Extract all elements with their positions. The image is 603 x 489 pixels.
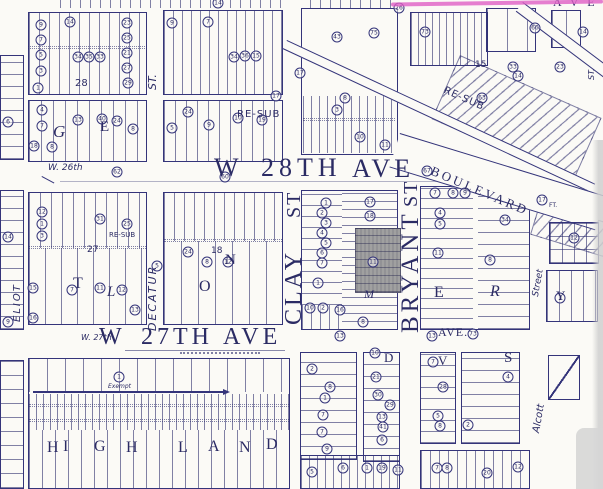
block-letter-label: V (438, 354, 447, 367)
lot-rows (164, 193, 282, 241)
lot-number-badge: 2 (307, 364, 318, 375)
lot-number-badge: 17 (295, 68, 306, 79)
lot-number-badge: 14 (513, 71, 524, 82)
lot-number-badge: 24 (112, 116, 123, 127)
street-label: CLAY (282, 250, 306, 325)
map-annotation: M (364, 288, 374, 300)
lot-rows (164, 241, 282, 324)
block-letter-label: H (47, 440, 59, 456)
lot-number-badge: 12 (569, 233, 580, 244)
lot-number-badge: 14 (578, 27, 589, 38)
lot-number-badge: 10 (355, 132, 366, 143)
street-label: ST (401, 180, 421, 207)
lot-number-badge: 18 (29, 141, 40, 152)
lot-number-badge: 6 (377, 435, 388, 446)
lot-number-badge: 62 (112, 167, 123, 178)
street-label: ST (284, 191, 304, 218)
block-letter-label: R (490, 284, 500, 300)
map-annotation: 27 (87, 246, 98, 255)
map-annotation: 15 (475, 61, 486, 70)
lot-number-badge: 8 (340, 93, 351, 104)
lot-number-badge: 6 (3, 117, 14, 128)
city-block (163, 10, 283, 95)
lot-number-badge: 19 (377, 463, 388, 474)
street-label: ST. (147, 74, 158, 90)
block-letter-label: A (208, 439, 220, 455)
lot-number-badge: 43 (332, 32, 343, 43)
lot-number-badge: 27 (122, 63, 133, 74)
lot-number-badge: 7 (428, 357, 439, 368)
lot-number-badge: 7 (430, 188, 441, 199)
lot-number-badge: 5 (167, 123, 178, 134)
survey-note-text (180, 352, 260, 354)
lot-number-badge: 4 (503, 372, 514, 383)
lot-number-badge: 5 (435, 219, 446, 230)
lot-number-badge: 31 (95, 214, 106, 225)
lot-number-badge: 8 (442, 463, 453, 474)
block-letter-label: H (126, 440, 138, 456)
lot-number-badge: 34 (229, 52, 240, 63)
lot-number-badge: 4 (435, 208, 446, 219)
lot-number-badge: 4 (37, 105, 48, 116)
block-letter-label: E (434, 285, 444, 301)
lot-number-badge: 5 (36, 50, 47, 61)
lot-number-badge: 21 (122, 48, 133, 59)
street-label: W. 26th (48, 164, 83, 173)
block-letter-label: N (225, 253, 236, 268)
lot-number-badge: 29 (385, 400, 396, 411)
street-arrow (42, 176, 55, 183)
map-annotation: Exempt (108, 384, 131, 390)
block-letter-label: S (504, 351, 512, 366)
map-annotation: 28 (75, 79, 88, 89)
lot-number-strip (164, 239, 282, 242)
lot-number-badge: 1 (313, 278, 324, 289)
lot-number-badge: 7 (317, 427, 328, 438)
lot-number-badge: 21 (371, 372, 382, 383)
lot-number-badge: 35 (84, 52, 95, 63)
lot-number-badge: 73 (468, 329, 479, 340)
lot-number-badge: 41 (378, 422, 389, 433)
avenue-underline (125, 350, 285, 351)
block-letter-label: G (53, 123, 65, 140)
lot-number-badge: 28 (438, 382, 449, 393)
city-block (0, 360, 24, 489)
lot-number-badge: 17 (537, 195, 548, 206)
lot-number-badge: 17 (271, 91, 282, 102)
lot-number-badge: 7 (37, 121, 48, 132)
lot-number-badge: 24 (183, 247, 194, 258)
block-letter-label: I (63, 439, 68, 455)
city-block (0, 55, 24, 160)
lot-number-badge: 8 (202, 257, 213, 268)
map-annotation: RE-SUB (237, 110, 280, 120)
lot-number-badge: 33 (95, 52, 106, 63)
lot-number-badge: 11 (95, 283, 106, 294)
exempt-boundary-line (33, 391, 223, 393)
lot-number-badge: 23 (555, 62, 566, 73)
lot-number-badge: 2 (463, 420, 474, 431)
street-label: AVE. (438, 326, 468, 338)
lot-number-badge: 13 (130, 305, 141, 316)
street-label: W (214, 155, 239, 181)
lot-number-badge: 1 (37, 219, 48, 230)
lot-number-badge: 15 (28, 283, 39, 294)
lot-number-badge: 5 (307, 467, 318, 478)
street-label: ST. (588, 68, 596, 80)
lot-rows (310, 0, 395, 8)
lot-number-badge: 25 (122, 219, 133, 230)
lot-number-badge: 7 (317, 258, 328, 269)
lot-number-badge: 13 (427, 331, 438, 342)
street-label: ELIOT (13, 283, 23, 322)
lot-number-badge: 3 (37, 231, 48, 242)
block-letter-label: G (94, 439, 106, 455)
block-letter-label: T (73, 276, 83, 292)
street-label: 28TH (261, 155, 342, 181)
lot-number-badge: 2 (318, 303, 329, 314)
lot-number-badge: 1 (114, 372, 125, 383)
lot-number-badge: 60 (530, 23, 541, 34)
lot-number-strip (29, 419, 289, 422)
lot-number-badge: 3 (332, 105, 343, 116)
lot-number-badge: 1 (320, 393, 331, 404)
lot-number-badge: 13 (335, 331, 346, 342)
lot-number-badge: 12 (513, 462, 524, 473)
lot-number-badge: 3 (36, 66, 47, 77)
lot-number-badge: 34 (73, 52, 84, 63)
block-letter-label: D (384, 351, 393, 364)
lot-number-badge: 13 (73, 115, 84, 126)
lot-number-badge: 36 (240, 51, 251, 62)
lot-number-badge: 8 (128, 124, 139, 135)
lot-number-badge: 9 (204, 120, 215, 131)
street-label: AVE (352, 156, 414, 182)
city-block (410, 12, 488, 66)
lot-number-badge: 8 (47, 142, 58, 153)
street-label: AVE (223, 325, 281, 349)
lot-number-badge: 11 (433, 248, 444, 259)
block-letter-label: L (178, 440, 188, 456)
map-annotation: RE-SUB (109, 232, 135, 239)
lot-number-badge: 12 (117, 285, 128, 296)
block-letter-label: Y (556, 289, 565, 302)
map-annotation: FT. (549, 203, 557, 209)
lot-number-strip (29, 404, 289, 407)
lot-number-badge: 75 (369, 28, 380, 39)
street-label: DECATUR (147, 265, 158, 331)
lot-rows (421, 187, 473, 329)
lot-rows (29, 394, 289, 430)
lot-number-badge: 8 (485, 255, 496, 266)
lot-number-badge: 8 (358, 317, 369, 328)
lot-number-badge: 20 (482, 468, 493, 479)
map-annotation: 18 (211, 247, 222, 256)
lot-number-badge: 23 (122, 18, 133, 29)
lot-number-badge: 17 (365, 197, 376, 208)
plat-map: W28THAVEW27THAVEAVE.CLAYSTBRYANTSTBOULEV… (0, 0, 603, 489)
lot-number-badge: 9 (167, 18, 178, 29)
block-letter-label: O (199, 279, 211, 295)
lot-number-badge: 14 (65, 17, 76, 28)
lot-number-badge: 25 (122, 33, 133, 44)
lot-number-badge: 73 (420, 27, 431, 38)
lot-number-badge: 9 (36, 20, 47, 31)
lot-number-badge: 24 (183, 107, 194, 118)
lot-number-badge: 16 (335, 305, 346, 316)
lot-number-badge: 11 (393, 465, 404, 476)
lot-number-badge: 11 (368, 257, 379, 268)
block-letter-label: E (100, 120, 109, 135)
lot-number-badge: 14 (3, 232, 14, 243)
lot-number-badge: 12 (37, 207, 48, 218)
lot-number-badge: 1 (33, 83, 44, 94)
lot-number-strip (303, 118, 395, 121)
lot-number-badge: 9 (322, 444, 333, 455)
block-letter-label: D (266, 437, 278, 453)
lot-rows (29, 359, 289, 392)
street-label: BRYANT (398, 210, 423, 333)
block-letter-label: L (107, 285, 115, 300)
lot-number-badge: 7 (318, 410, 329, 421)
lot-number-badge: 29 (123, 78, 134, 89)
lot-number-badge: 18 (365, 211, 376, 222)
lot-number-badge: 1 (362, 463, 373, 474)
street-label: Street (532, 269, 546, 298)
lot-number-badge: 8 (435, 421, 446, 432)
lot-number-badge: 16 (28, 313, 39, 324)
lot-number-badge: 7 (36, 35, 47, 46)
lot-number-badge: 11 (380, 140, 391, 151)
city-block (548, 355, 580, 400)
lot-number-badge: 6 (338, 463, 349, 474)
street-label: W. 27th (81, 334, 112, 342)
lot-number-badge: 34 (500, 215, 511, 226)
street-label: Alcott (532, 403, 547, 433)
lot-number-badge: 7 (203, 17, 214, 28)
lot-number-badge: 8 (325, 382, 336, 393)
lot-number-badge: 15 (251, 51, 262, 62)
lot-rows (60, 0, 290, 8)
lot-number-badge: 10 (370, 348, 381, 359)
block-letter-label: N (239, 440, 251, 456)
scan-artifact (576, 428, 603, 489)
boundary-arrow (223, 389, 230, 395)
lot-number-badge: 30 (373, 390, 384, 401)
lot-rows (29, 248, 146, 324)
